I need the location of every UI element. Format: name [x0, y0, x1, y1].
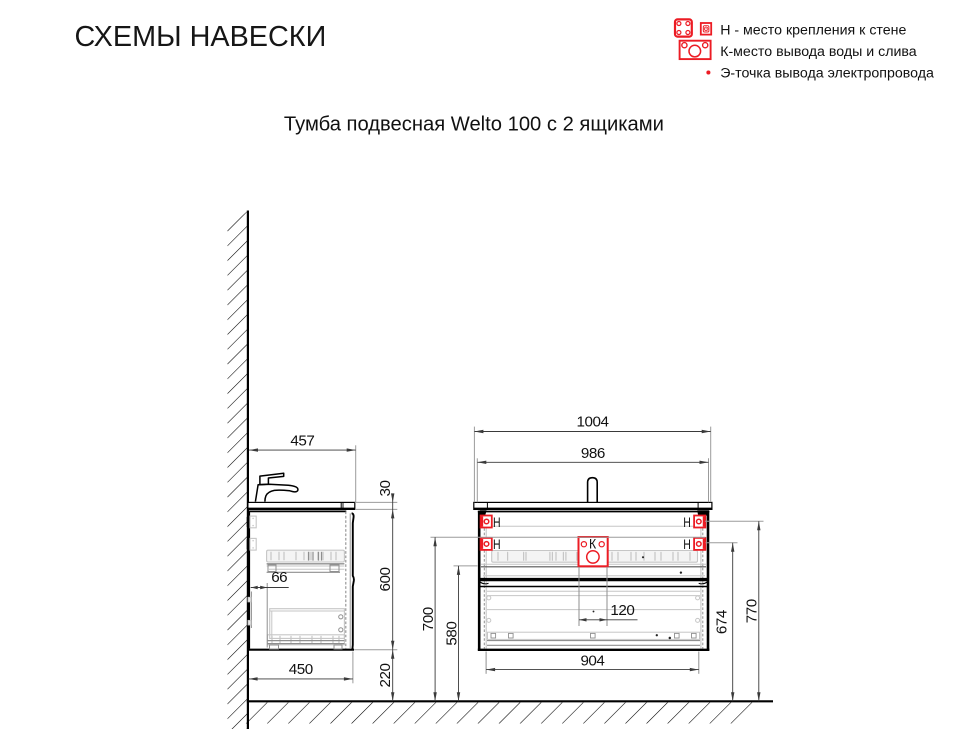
svg-text:Н: Н: [493, 514, 501, 530]
svg-text:450: 450: [289, 661, 313, 678]
svg-text:120: 120: [610, 602, 634, 619]
svg-text:986: 986: [581, 445, 605, 462]
svg-text:580: 580: [443, 622, 460, 646]
svg-text:СХЕМЫ НАВЕСКИ: СХЕМЫ НАВЕСКИ: [75, 21, 327, 53]
svg-text:220: 220: [377, 664, 394, 688]
svg-text:600: 600: [377, 568, 394, 592]
svg-text:Э-точка вывода электропровода: Э-точка вывода электропровода: [720, 65, 934, 81]
svg-text:1004: 1004: [577, 414, 609, 431]
svg-text:904: 904: [580, 652, 604, 669]
svg-text:Н - место крепления к стене: Н - место крепления к стене: [720, 23, 906, 39]
svg-text:674: 674: [714, 610, 731, 634]
svg-text:Н: Н: [683, 536, 691, 552]
svg-text:К: К: [589, 536, 596, 551]
svg-text:К-место вывода воды и слива: К-место вывода воды и слива: [720, 44, 917, 60]
svg-text:457: 457: [290, 433, 314, 450]
svg-text:30: 30: [377, 481, 394, 497]
svg-text:Тумба подвесная Welto 100 с 2: Тумба подвесная Welto 100 с 2 ящиками: [284, 113, 664, 135]
svg-text:Н: Н: [493, 536, 501, 552]
svg-text:Н: Н: [683, 514, 691, 530]
svg-text:66: 66: [271, 569, 287, 586]
svg-text:700: 700: [420, 607, 437, 631]
svg-text:770: 770: [744, 599, 761, 623]
